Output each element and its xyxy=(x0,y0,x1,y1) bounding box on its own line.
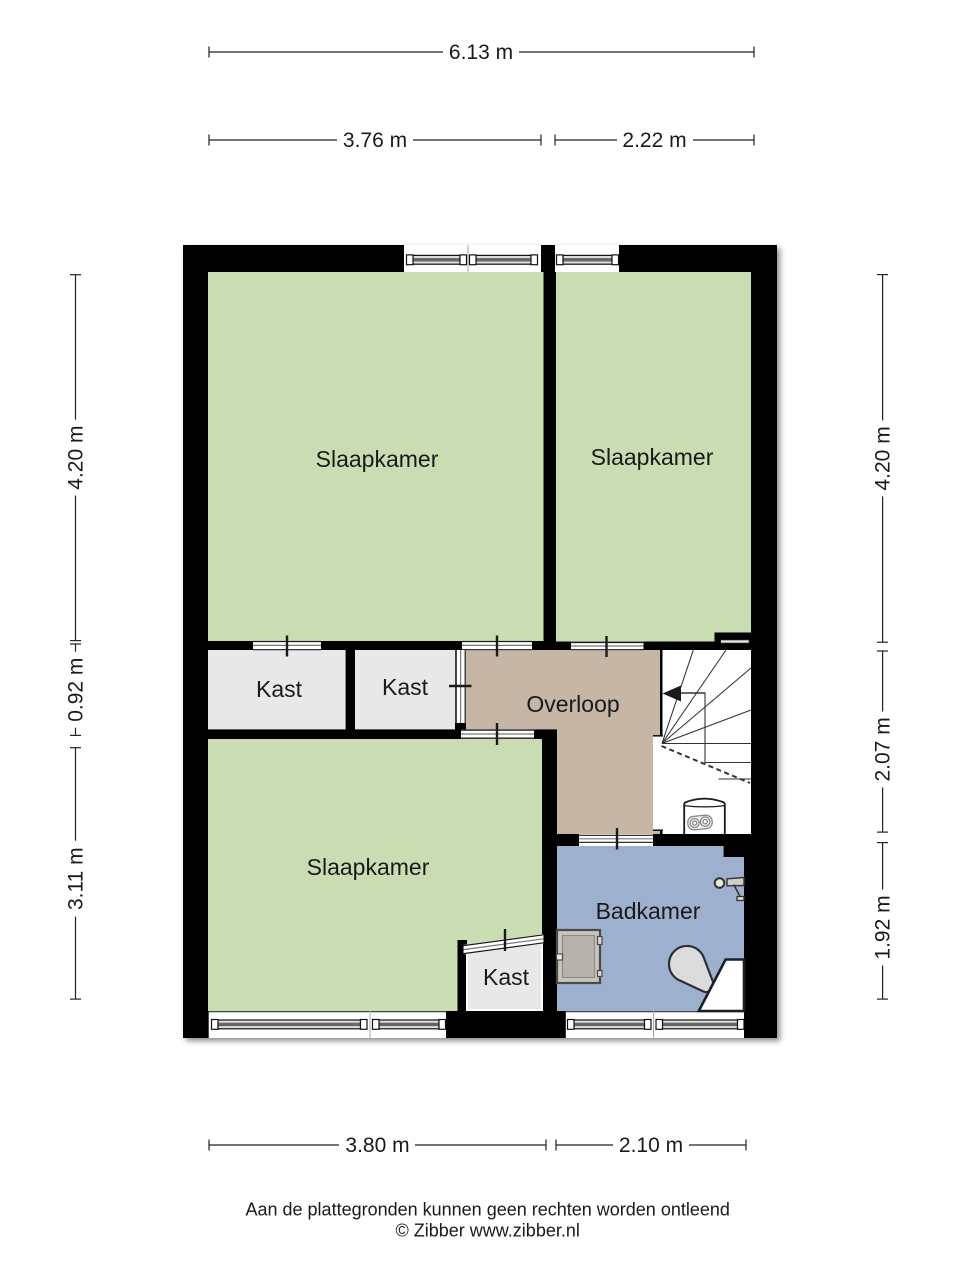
svg-text:4.20 m: 4.20 m xyxy=(65,425,88,489)
svg-text:Kast: Kast xyxy=(382,674,429,700)
svg-text:3.11 m: 3.11 m xyxy=(65,847,88,910)
svg-text:6.13 m: 6.13 m xyxy=(449,41,513,64)
svg-text:4.20 m: 4.20 m xyxy=(872,426,895,490)
svg-text:Aan de plattegronden kunnen ge: Aan de plattegronden kunnen geen rechten… xyxy=(246,1200,730,1220)
svg-text:Overloop: Overloop xyxy=(526,691,619,717)
svg-text:Slaapkamer: Slaapkamer xyxy=(307,854,430,880)
svg-text:© Zibber www.zibber.nl: © Zibber www.zibber.nl xyxy=(396,1221,580,1241)
svg-text:Kast: Kast xyxy=(483,964,530,990)
svg-text:2.10 m: 2.10 m xyxy=(619,1134,683,1157)
svg-text:3.76 m: 3.76 m xyxy=(343,129,407,152)
svg-text:Kast: Kast xyxy=(256,676,303,702)
svg-text:Badkamer: Badkamer xyxy=(596,898,701,924)
svg-text:2.07 m: 2.07 m xyxy=(872,717,895,781)
svg-text:0.92 m: 0.92 m xyxy=(65,658,88,722)
svg-text:Slaapkamer: Slaapkamer xyxy=(316,446,439,472)
svg-text:3.80 m: 3.80 m xyxy=(345,1134,409,1157)
svg-text:Slaapkamer: Slaapkamer xyxy=(591,444,714,470)
svg-text:2.22 m: 2.22 m xyxy=(622,129,686,152)
svg-text:1.92 m: 1.92 m xyxy=(872,895,895,959)
